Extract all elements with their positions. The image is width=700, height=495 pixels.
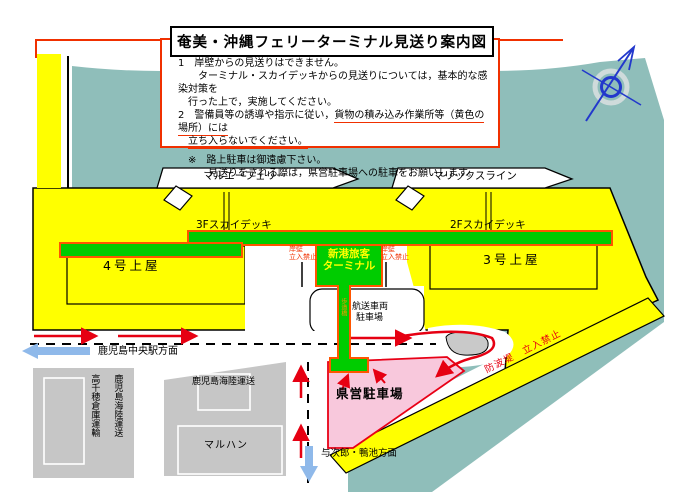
terminal-label: 新港旅客 ターミナル [314,248,384,272]
shed4-label: 4号上屋 [103,259,160,273]
building-maruhan-label: マルハン [204,440,248,452]
building-kairiku-horizontal-label: 鹿児島海陸運送 [192,377,255,387]
notice-note-2: 見送りをされる際は，県営駐車場への駐車をお願いします。 [178,167,494,180]
skydeck-walkway [188,231,612,245]
skydeck-3f-label: 3Fスカイデッキ [196,219,272,231]
vehicle-parking-label: 航送車両 駐車場 [352,302,388,324]
building-takachiho-label: 高千穂倉庫運輸 [89,374,99,474]
footbridge-label: 歩道橋 [339,298,346,316]
skydeck-walkway-west [60,243,242,257]
notice-line-4: 2 警備員等の誘導や指示に従い，貨物の積み込み作業所等（黄色の場所）には [178,109,494,135]
pref-parking-label: 県営駐車場 [336,387,404,401]
building-kairiku-vertical-label: 鹿児島海陸運送 [112,374,122,474]
direction-west-label: 鹿児島中央駅方面 [98,346,178,358]
west-pier [37,54,61,188]
quay-warning-left: 岸壁 立入禁止 [289,245,317,261]
notice-line-2: ターミナル・スカイデッキからの見送りについては，基本的な感染対策を [178,70,494,96]
skydeck-2f-label: 2Fスカイデッキ [450,219,526,231]
shed3-label: 3号上屋 [483,253,540,267]
notice-line-1: 1 岸壁からの見送りはできません。 [178,57,494,70]
quay-warning-right: 岸壁 立入禁止 [381,245,409,261]
notice-line-3: 行った上で，実施してください。 [178,96,494,109]
page-title: 奄美・沖縄フェリーターミナル見送り案内図 [170,26,494,57]
direction-south-label: 与次郎・鴨池方面 [321,449,397,460]
notice-note-1: ※ 路上駐車は御遠慮下さい。 [178,154,494,167]
ferry-terminal-guide-map: 1 岸壁からの見送りはできません。 ターミナル・スカイデッキからの見送りについて… [0,0,700,495]
notice-line-5: 立ち入らないでください。 [178,135,494,148]
